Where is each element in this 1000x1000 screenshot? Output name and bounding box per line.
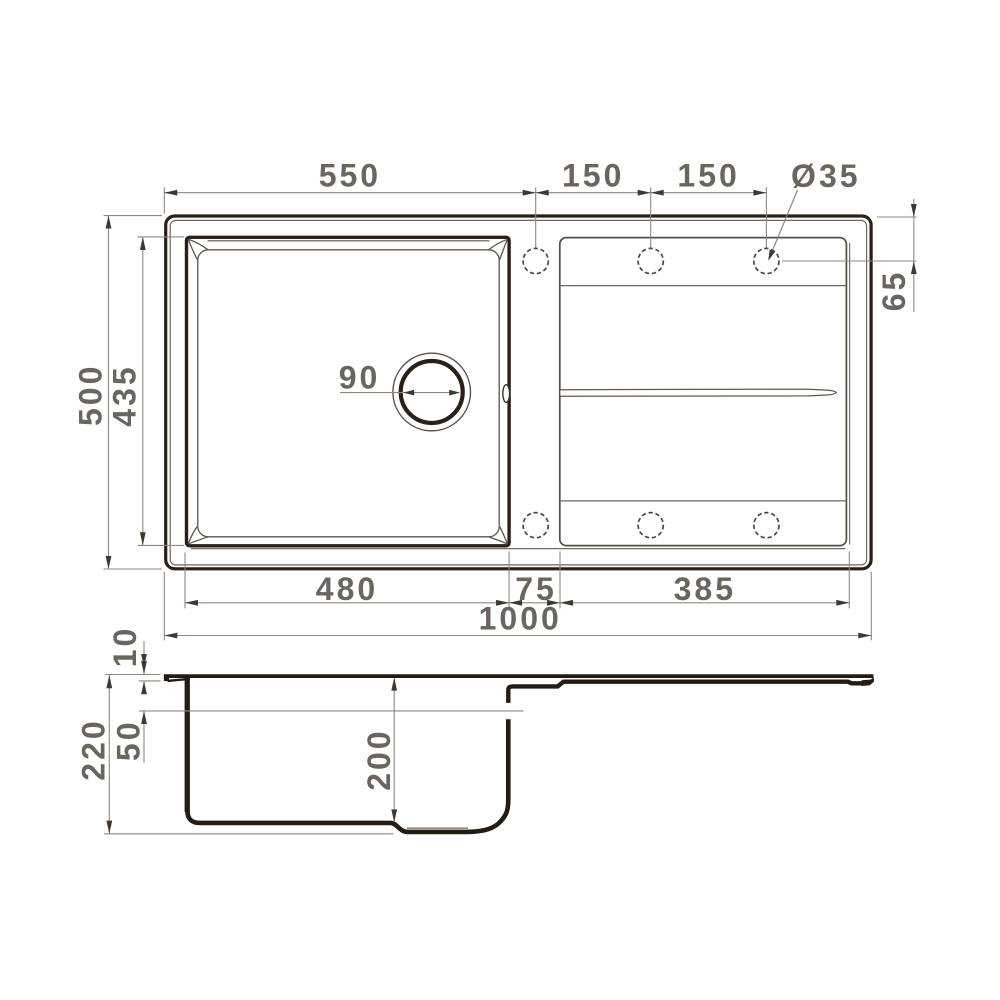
svg-text:435: 435 [107, 364, 143, 426]
svg-text:550: 550 [319, 158, 381, 194]
svg-text:385: 385 [674, 571, 736, 607]
svg-text:480: 480 [316, 571, 378, 607]
svg-text:220: 220 [76, 718, 112, 780]
svg-text:150: 150 [562, 158, 624, 194]
svg-text:200: 200 [361, 728, 397, 790]
svg-text:90: 90 [339, 360, 381, 396]
svg-text:50: 50 [111, 720, 147, 762]
svg-text:10: 10 [107, 626, 143, 668]
svg-text:500: 500 [73, 364, 109, 426]
svg-text:65: 65 [876, 270, 912, 312]
svg-text:1000: 1000 [479, 600, 562, 636]
svg-text:150: 150 [677, 158, 739, 194]
svg-text:Ø35: Ø35 [791, 158, 860, 194]
